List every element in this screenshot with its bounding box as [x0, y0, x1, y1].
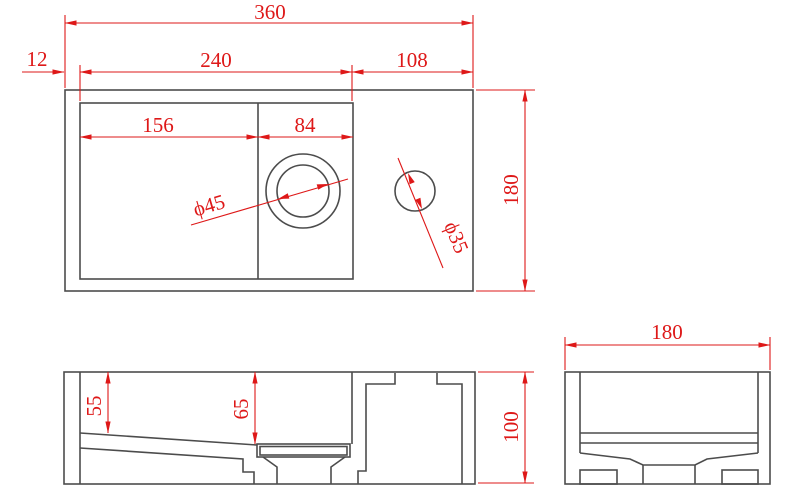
sink-dimension-drawing: 360 12 240 108 156 84 180 ϕ45 ϕ35: [0, 0, 800, 498]
dimension-label-side-depth: 180: [651, 320, 683, 344]
dimension-label-basin-opening: 240: [200, 48, 232, 72]
dimension-label-basin-depth-left: 55: [82, 396, 106, 417]
canvas-background: [0, 0, 800, 498]
dimension-label-rim-offset: 12: [27, 47, 48, 71]
dimension-label-overall-height: 100: [499, 411, 523, 443]
technical-drawing-page: 360 12 240 108 156 84 180 ϕ45 ϕ35: [0, 0, 800, 498]
dimension-label-basin-depth-right: 65: [229, 399, 253, 420]
dimension-label-basin-left: 156: [142, 113, 174, 137]
dimension-label-overall-depth: 180: [499, 174, 523, 206]
dimension-label-tap-deck: 108: [396, 48, 428, 72]
dimension-label-overall-width: 360: [254, 0, 286, 24]
dimension-label-basin-right: 84: [295, 113, 317, 137]
